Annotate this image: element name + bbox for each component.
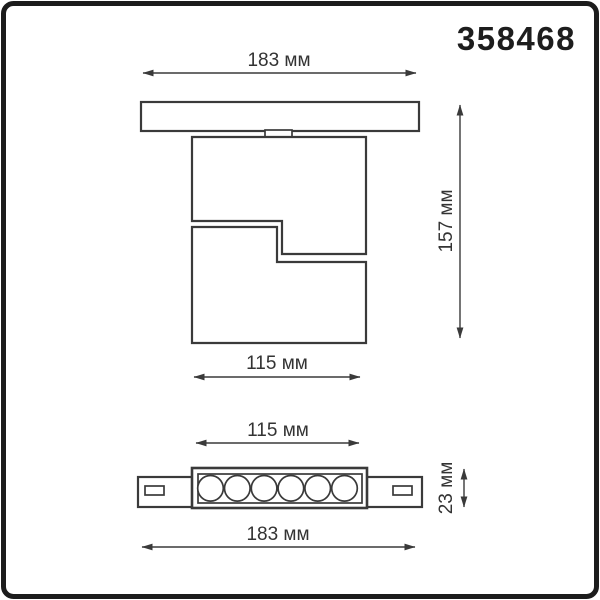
led-spot-6 [332,476,358,502]
tab-slot-right [393,486,412,495]
led-spot-3 [251,476,277,502]
dimension-label: 157 мм [436,189,457,252]
led-spot-5 [305,476,331,502]
led-spot-1 [198,476,224,502]
dim-height: 23 мм [436,462,464,515]
dimension-label: 115 мм [246,353,308,374]
led-spot-4 [278,476,304,502]
dim-height: 157 мм [436,105,460,338]
dim-body-width: 115 мм [194,353,360,377]
dim-body-width: 115 мм [196,420,359,443]
dimension-label: 183 мм [247,50,310,71]
drawing-canvas: 358468 183 мм 115 мм [0,0,600,600]
dimension-drawing: 358468 183 мм 115 мм [0,0,600,600]
tab-slot-left [145,486,164,495]
track-mount-bar [141,102,419,131]
dimension-label: 115 мм [247,420,309,441]
bottom-view: 115 мм 23 мм 1 [138,420,464,547]
product-code: 358468 [457,20,576,57]
led-spot-2 [225,476,251,502]
dimension-label: 23 мм [436,462,457,515]
dim-track-width: 183 мм [143,50,416,73]
dim-total-width: 183 мм [142,524,415,547]
dimension-label: 183 мм [246,524,309,545]
front-view: 183 мм 115 мм 157 мм [141,50,460,377]
